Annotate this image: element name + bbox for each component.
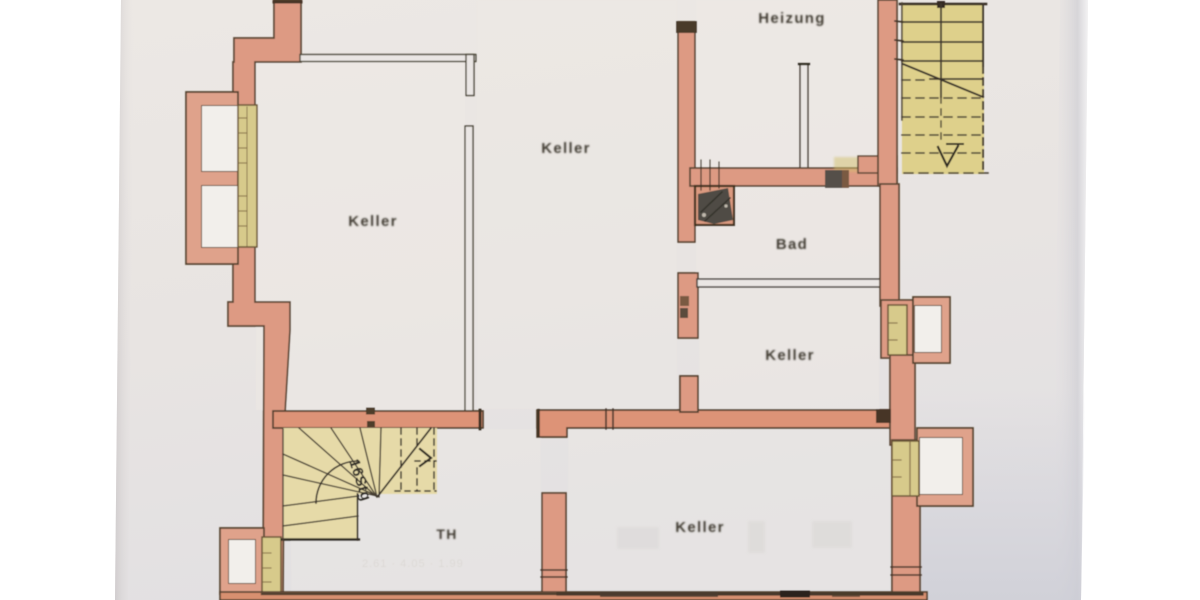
svg-text:Keller: Keller (348, 213, 398, 230)
svg-text:TH: TH (436, 526, 457, 542)
svg-text:Heizung: Heizung (758, 10, 825, 27)
svg-text:Keller: Keller (541, 140, 591, 157)
svg-text:Keller: Keller (675, 519, 725, 536)
svg-text:2.61 · 4.05 · 1.99: 2.61 · 4.05 · 1.99 (362, 558, 464, 570)
svg-text:Keller: Keller (765, 347, 815, 364)
svg-text:Bad: Bad (776, 236, 808, 253)
